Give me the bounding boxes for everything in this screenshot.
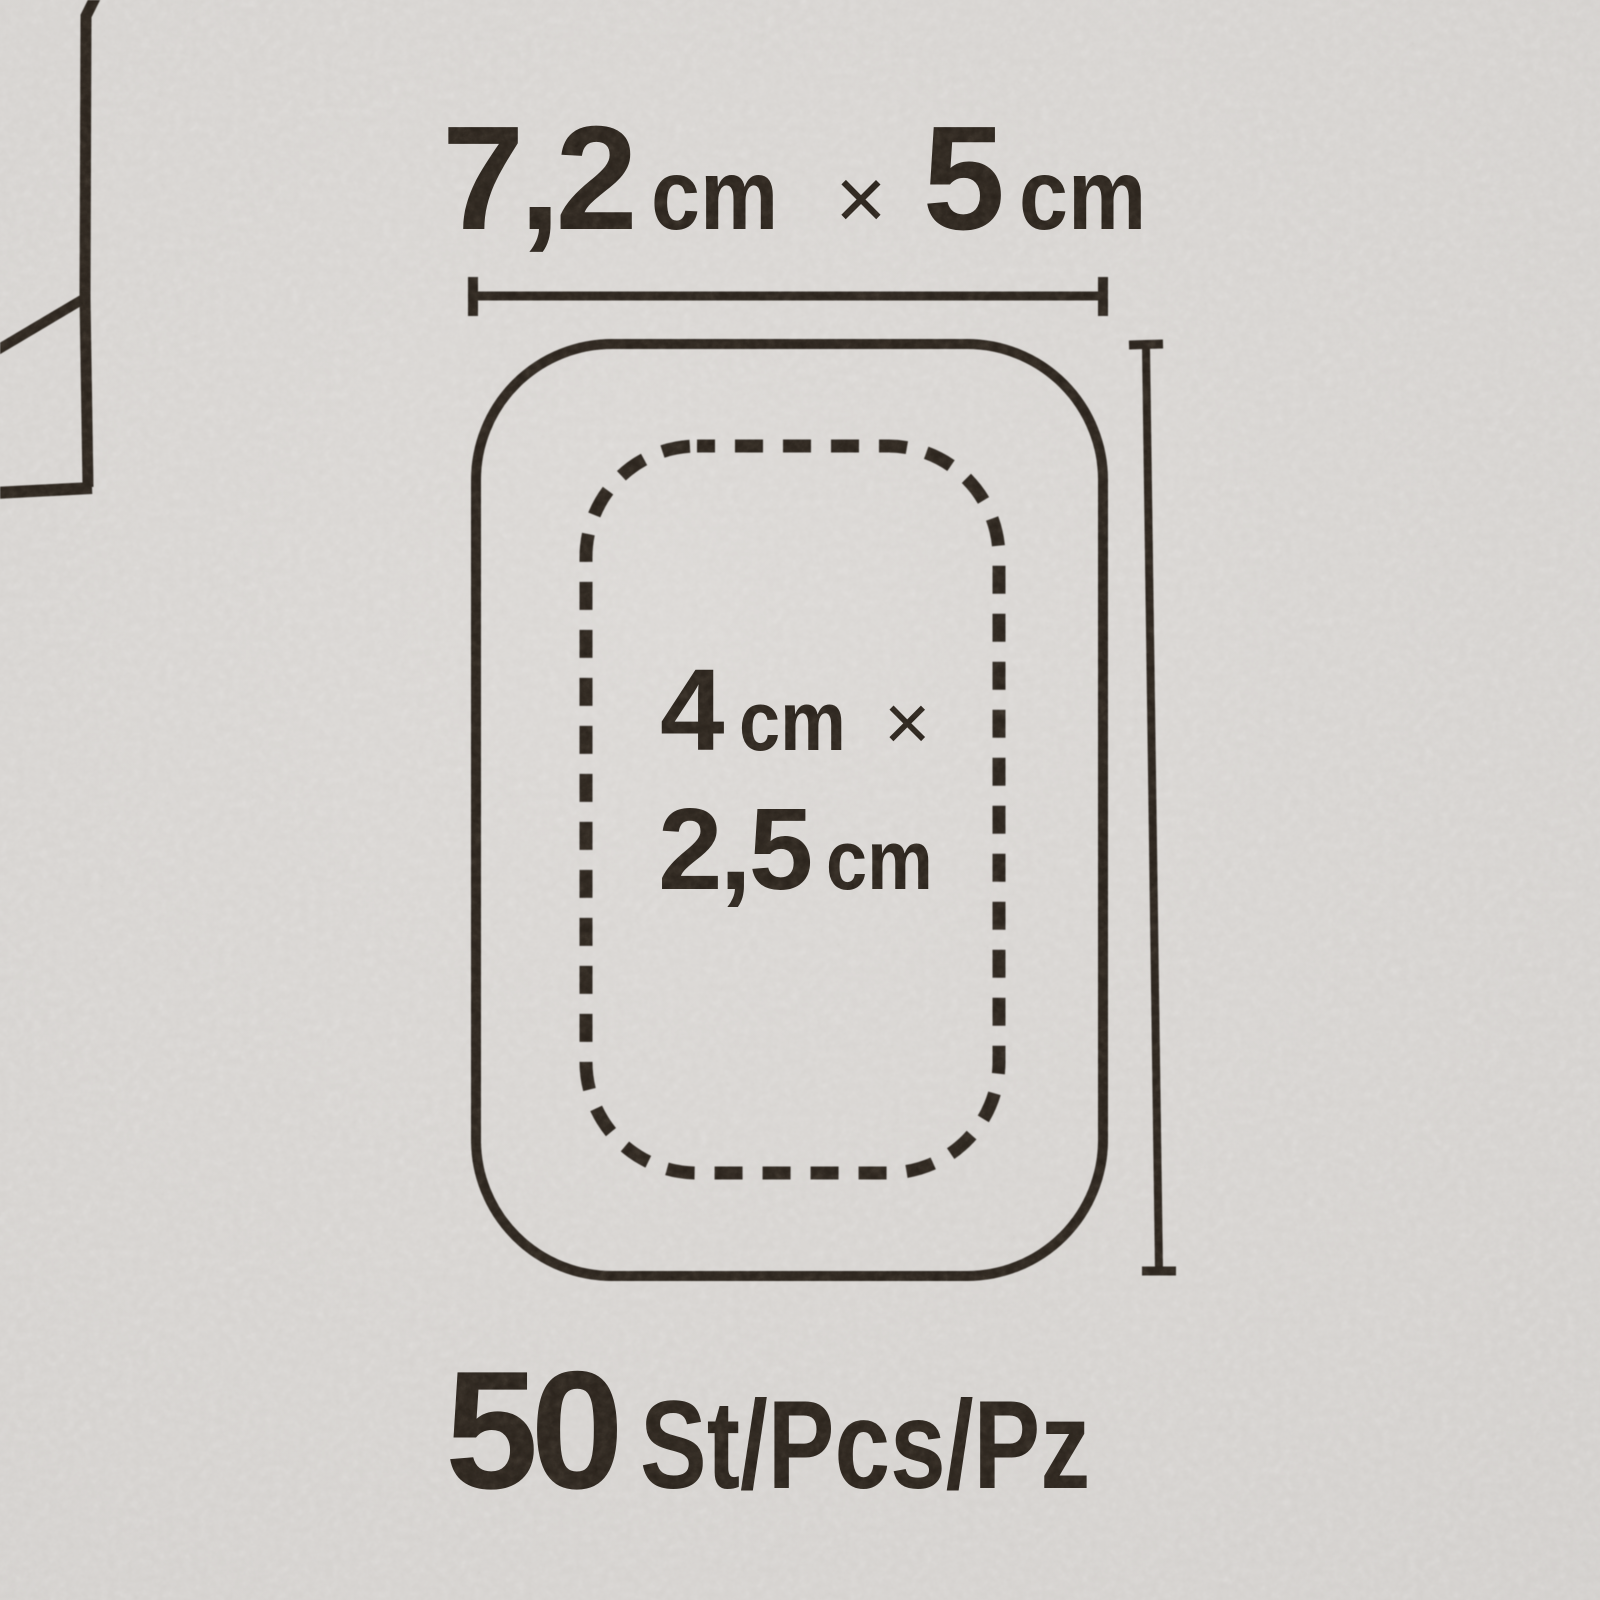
pad-multiply-sign: × bbox=[884, 677, 931, 769]
outer-height-value: 5 bbox=[923, 94, 1005, 264]
outer-width-value: 7,2 bbox=[442, 94, 633, 264]
pad-dimensions-label-line1: 4 cm × bbox=[660, 643, 931, 777]
outer-width-unit: cm bbox=[651, 138, 778, 253]
pad-dimensions-label-line2: 2,5 cm bbox=[658, 782, 948, 916]
height-dimension-line bbox=[1129, 344, 1176, 1271]
fragment-vertical-edge bbox=[85, 0, 97, 487]
height-dimension-tick-top bbox=[1129, 344, 1163, 345]
quantity-units: St/Pcs/Pz bbox=[640, 1374, 1090, 1517]
width-dimension-line bbox=[473, 277, 1103, 316]
outer-dimensions-label: 7,2 cm × 5 cm bbox=[442, 94, 1164, 264]
fragment-bottom-edge bbox=[0, 488, 92, 493]
adjacent-diagram-fragment bbox=[0, 0, 97, 493]
pad-width-unit: cm bbox=[739, 673, 846, 770]
quantity-label: 50 St/Pcs/Pz bbox=[445, 1334, 1203, 1527]
outer-multiply-sign: × bbox=[835, 148, 886, 250]
pad-width-value: 4 bbox=[660, 643, 725, 777]
pad-height-unit: cm bbox=[826, 812, 933, 909]
height-dimension-rule bbox=[1146, 347, 1159, 1271]
packaging-photo: 7,2 cm × 5 cm 4 cm × 2,5 cm 50 St/Pcs/Pz bbox=[0, 0, 1600, 1600]
outer-height-unit: cm bbox=[1019, 138, 1146, 253]
fragment-diagonal-edge bbox=[0, 298, 85, 352]
quantity-count: 50 bbox=[445, 1334, 616, 1527]
pad-height-value: 2,5 bbox=[658, 782, 810, 916]
